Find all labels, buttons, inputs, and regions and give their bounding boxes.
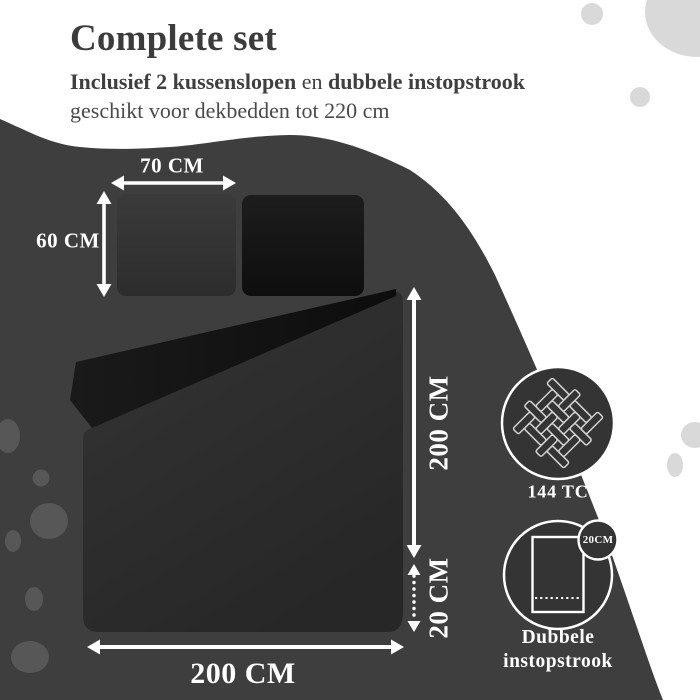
pillow-grey xyxy=(117,194,236,296)
pillow-height-label: 60 CM xyxy=(36,229,100,254)
thread-count-badge xyxy=(502,367,614,479)
pillow-width-label: 70 CM xyxy=(140,154,204,179)
tuck-size-tag: 20CM xyxy=(583,534,614,546)
tuck-badge-label-line1: Dubbele xyxy=(473,626,643,650)
subtitle-line1: Inclusief 2 kussenslopen en dubbele inst… xyxy=(70,68,525,96)
infographic-canvas: Complete set Inclusief 2 kussenslopen en… xyxy=(0,0,700,700)
header: Complete set Inclusief 2 kussenslopen en… xyxy=(70,18,525,124)
tuck-badge-label: Dubbele instopstrook xyxy=(473,626,643,674)
subtitle-bold-kussenslopen: Inclusief 2 kussenslopen xyxy=(70,69,296,94)
subtitle-connector: en xyxy=(296,69,328,94)
page-title: Complete set xyxy=(70,18,525,61)
subtitle-bold-instopstrook: dubbele instopstrook xyxy=(328,69,525,94)
duvet-length-label: 200 CM xyxy=(424,375,455,470)
tuck-length-label: 20 CM xyxy=(424,557,455,638)
tuck-badge-label-line2: instopstrook xyxy=(473,650,643,674)
pillow-black xyxy=(242,195,364,296)
subtitle-line2: geschikt voor dekbedden tot 220 cm xyxy=(70,98,525,124)
thread-count-label: 144 TC xyxy=(528,482,589,503)
duvet-width-label: 200 CM xyxy=(190,657,295,691)
